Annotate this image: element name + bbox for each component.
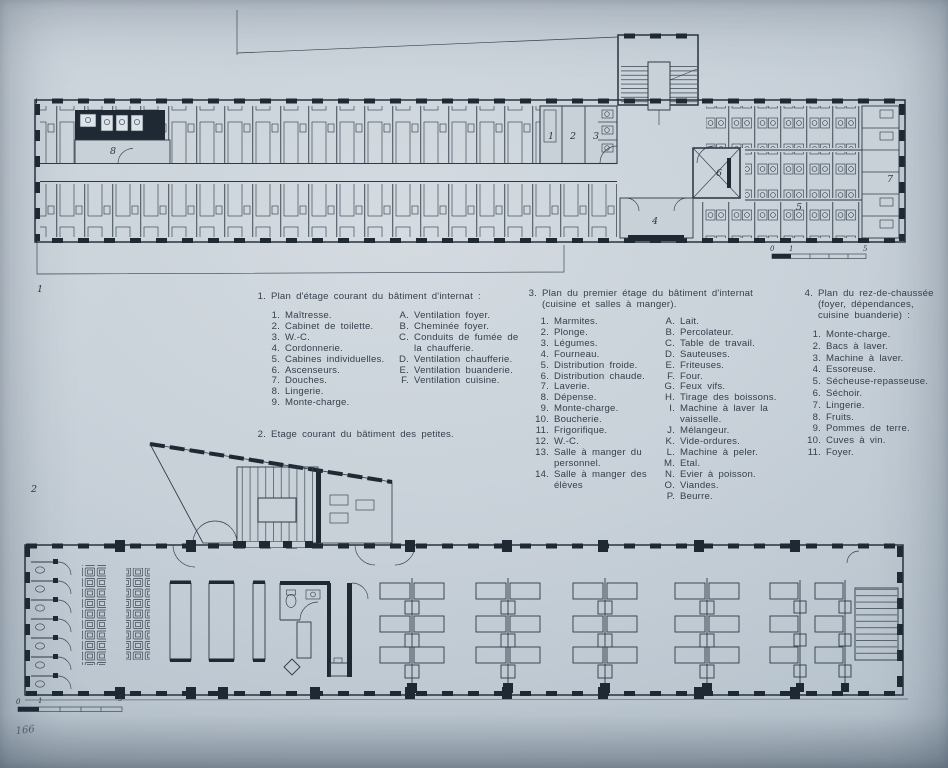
legend-item-letter: O. [661,481,680,492]
legend-item: 6. Ascenseurs. [262,366,395,377]
room-label-2: 2 [569,131,576,142]
legend-1-lettered-list: A. Ventilation foyer. B. Cheminée foyer.… [395,311,523,409]
legend-item-number: 7. [803,400,826,412]
legend-item-label: Friteuses. [680,361,783,372]
legend-item-label: Sécheuse-repasseuse. [826,376,946,388]
legend-item: O. Viandes. [661,481,783,492]
legend-plan-1: 1. Plan d'étage courant du bâtiment d'in… [252,291,527,409]
legend-item-number: 4. [531,350,554,361]
legend-1-numbered-list: 1. Maîtresse. 2. Cabinet de toilette. 3.… [262,311,395,409]
legend-4-title: 4. Plan du rez-de-chaussée (foyer, dépen… [799,288,946,321]
legend-item-label: Foyer. [826,447,946,459]
hall-outline [25,545,903,695]
legend-item: 6. Séchoir. [803,388,946,400]
legend-item-number: 13. [531,448,554,470]
legend-item-label: Monte-charge. [826,329,946,341]
legend-1-title: 1. Plan d'étage courant du bâtiment d'in… [252,291,527,302]
room-label-6: 6 [716,168,722,179]
wc-room [280,581,348,677]
legend-3-lettered-list: A. Lait. B. Percolateur. C. Table de tra… [661,317,783,502]
legend-item-number: 2. [803,341,826,353]
legend-item-label: Monte-charge. [285,398,395,409]
legend-3-title-text: Plan du premier étage du bâtiment d'inte… [542,288,783,310]
legend-item-label: Sauteuses. [680,350,783,361]
toilet-stalls [31,559,71,689]
legend-item-label: Ventilation cuisine. [414,376,523,387]
legend-item-label: Viandes. [680,481,783,492]
entrance-strip [233,541,313,548]
legend-item-number: 8. [803,412,826,424]
legend-item: 7. Lingerie. [803,400,946,412]
partition-wall [347,583,368,677]
legend-1-title-text: Plan d'étage courant du bâtiment d'inter… [271,291,481,302]
legend-plan-2: 2. Etage courant du bâtiment des petites… [252,429,532,440]
legend-item: 3. Machine à laver. [803,353,946,365]
stair-tower [618,34,698,126]
legend-item: N. Evier à poisson. [661,470,783,481]
room-label-7: 7 [887,174,894,185]
room-label-8: 8 [110,146,116,157]
legend-item-number: 5. [531,361,554,372]
legend-item-letter: I. [661,404,680,426]
scale-bar-plan1: 0 1 5 [770,245,868,259]
legend-item-number: 3. [803,353,826,365]
elevator-shaft: 6 [693,148,740,198]
legend-item: 1. Monte-charge. [803,329,946,341]
plan-1-dormitory-floor: 8 1 2 3 6 [35,10,905,295]
legend-4-title-text: Plan du rez-de-chaussée (foyer, dépendan… [818,288,946,321]
legend-item-number: 4. [262,344,285,355]
legend-plan-3: 3. Plan du premier étage du bâtiment d'i… [523,288,783,502]
room-cordonnerie: 4 [620,198,693,241]
svg-text:0: 0 [16,698,21,706]
wall-segment [253,581,265,663]
dormitory-rooms-bottom [40,184,617,237]
svg-text:5: 5 [118,695,123,703]
room-label-1: 1 [548,131,554,142]
legend-item: 6. Distribution chaude. [531,372,661,383]
legend-item: 4. Cordonnerie. [262,344,395,355]
legend-2-title: 2. Etage courant du bâtiment des petites… [252,429,532,440]
legend-item-label: Evier à poisson. [680,470,783,481]
legend-item-label: Essoreuse. [826,364,946,376]
legend-item-label: Lingerie. [826,400,946,412]
legend-item: 11. Frigorifique. [531,426,661,437]
structural-columns [115,540,800,699]
legend-item-number: 5. [803,376,826,388]
page-number: 166 [15,724,36,737]
terrace-line [37,242,564,274]
legend-item-number: 5. [262,355,285,366]
legend-item-letter: P. [661,492,680,503]
legend-item: 5. Cabines individuelles. [262,355,395,366]
legend-item-label: Cordonnerie. [285,344,395,355]
legend-item-letter: D. [661,350,680,361]
legend-item: D. Sauteuses. [661,350,783,361]
diagonal-stair-wing [150,444,392,543]
legend-4-number: 4. [799,288,818,321]
legend-item: E. Friteuses. [661,361,783,372]
legend-item-label: Bacs à laver. [826,341,946,353]
legend-2-number: 2. [252,429,271,440]
legend-item-letter: E. [661,361,680,372]
svg-text:1: 1 [38,697,42,705]
shower-rooms: 7 [862,106,899,238]
legend-item: I. Machine à laver la vaisselle. [661,404,783,426]
cabins-with-basins-middle [745,152,860,198]
legend-item-number: 9. [262,398,285,409]
legend-3-title: 3. Plan du premier étage du bâtiment d'i… [523,288,783,310]
legend-1-number: 1. [252,291,271,302]
legend-item: 14. Salle à manger des élèves [531,470,661,492]
room-lingerie: 8 [75,140,170,164]
legend-3-numbered-list: 1. Marmites. 2. Plonge. 3. Légumes. 4. F… [531,317,661,502]
legend-item-letter: F. [395,376,414,387]
locker-column-1 [82,565,106,665]
svg-text:5: 5 [863,245,868,253]
legend-item-label: Salle à manger du personnel. [554,448,661,470]
legend-item: 9. Pommes de terre. [803,423,946,435]
legend-item-number: 14. [531,470,554,492]
hall-staircase [855,588,898,660]
legend-item-label: Beurre. [680,492,783,503]
legend-item: 2. Bacs à laver. [803,341,946,353]
legend-item: 1. Marmites. [531,317,661,328]
figure-number-2: 2 [30,484,37,495]
legend-item-label: Pommes de terre. [826,423,946,435]
legend-item-number: 10. [803,435,826,447]
room-label-3: 3 [593,131,599,142]
legend-item: C. Conduits de fumée de la chaufferie. [395,333,523,355]
locker-column-2 [126,568,150,660]
legend-item-label: Machine à laver. [826,353,946,365]
legend-item-label: Salle à manger des élèves [554,470,661,492]
legend-item-label: Ventilation chaufferie. [414,355,523,366]
legend-item-number: 1. [803,329,826,341]
legend-item-label: Fruits. [826,412,946,424]
legend-item-label: Distribution froide. [554,361,661,372]
legend-item-letter: N. [661,470,680,481]
shelf-unit-1 [170,581,191,663]
svg-text:0: 0 [770,245,775,253]
legend-item-label: Cuves à vin. [826,435,946,447]
legend-item: 10. Cuves à vin. [803,435,946,447]
svg-text:1: 1 [789,245,793,253]
cabins-with-basins-bottom [700,202,862,238]
scale-bar-plan2: 0 1 5 [16,695,123,712]
legend-item-number: 4. [803,364,826,376]
legend-item: 4. Fourneau. [531,350,661,361]
legend-item-label: Fourneau. [554,350,661,361]
legend-2-title-text: Etage courant du bâtiment des petites. [271,429,454,440]
legend-item-number: 6. [803,388,826,400]
legend-item-letter: C. [395,333,414,355]
scanned-book-page: 8 1 2 3 6 [0,0,948,768]
legend-item: 13. Salle à manger du personnel. [531,448,661,470]
legend-item: F. Ventilation cuisine. [395,376,523,387]
legend-3-number: 3. [523,288,542,310]
figure-number-1: 1 [37,284,43,295]
legend-item: 4. Essoreuse. [803,364,946,376]
legend-item: 2. Cabinet de toilette. [262,322,395,333]
legend-item: 7. Douches. [262,376,395,387]
room-label-4: 4 [651,216,658,227]
legend-plan-4: 4. Plan du rez-de-chaussée (foyer, dépen… [799,288,946,459]
legend-item: D. Ventilation chaufferie. [395,355,523,366]
legend-item-label: Machine à laver la vaisselle. [680,404,783,426]
legend-item: 5. Distribution froide. [531,361,661,372]
legend-item: 11. Foyer. [803,447,946,459]
diamond-fixture [284,659,300,675]
legend-item: P. Beurre. [661,492,783,503]
room-label-5: 5 [796,202,802,213]
legend-item: 9. Monte-charge. [262,398,395,409]
bed-groups [380,578,851,693]
rooms-1-2-3: 1 2 3 [540,106,617,164]
legend-item-letter: D. [395,355,414,366]
legend-4-numbered-list: 1. Monte-charge. 2. Bacs à laver. 3. Mac… [803,329,946,459]
legend-item-label: Conduits de fumée de la chaufferie. [414,333,523,355]
legend-item-label: Séchoir. [826,388,946,400]
legend-item-number: 9. [803,423,826,435]
legend-item: 8. Fruits. [803,412,946,424]
legend-item: 5. Sécheuse-repasseuse. [803,376,946,388]
legend-item-number: 11. [803,447,826,459]
shelf-unit-2 [209,581,234,663]
legend-item-label: Cabines individuelles. [285,355,395,366]
